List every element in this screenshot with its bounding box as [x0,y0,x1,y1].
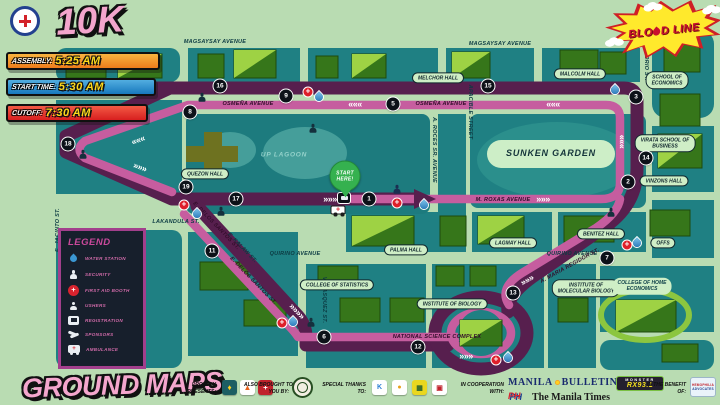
place-label: COLLEGE OF STATISTICS [300,279,374,290]
route-marker-18: 18 [62,138,75,151]
street-label: MAGSAYSAY AVENUE [469,41,531,47]
university-seal-logo [292,377,313,398]
place-label: PALMA HALL [384,244,428,255]
ambulance-icon [68,345,80,353]
route-marker-12: 12 [412,341,425,354]
firstaid-icon [622,240,633,251]
legend-item: REGISTRATION [68,316,136,325]
firstaid-icon [68,285,79,296]
schedule-label: ASSEMBLY: [12,58,53,65]
street-label: QUIRINO AVENUE [270,251,321,257]
water-icon [68,253,79,264]
route-marker-16: 16 [214,80,227,93]
place-label: UP LAGOON [261,152,307,159]
security-icon [310,124,317,133]
route-marker-11: 11 [206,245,219,258]
route-marker-13: 13 [507,287,520,300]
street-label: OSMEÑA AVENUE [222,101,273,107]
place-label: COLLEGE OF HOMEECONOMICS [613,278,672,295]
schedule-time: 5:25 AM [55,55,100,67]
footer-section-label: ALSO BROUGHT TOYOU BY: [244,382,289,395]
route-marker-19: 19 [180,181,193,194]
start-pin-label: HERE! [336,176,353,182]
direction-chevrons: ««« [546,99,560,109]
schedule-label: START TIME: [12,84,57,91]
ground-map-poster: MAGSAYSAY AVENUEMAGSAYSAY AVENUEOSMEÑA A… [0,0,720,405]
route-marker-17: 17 [230,193,243,206]
street-label: LAKANDULA ST. [152,219,199,225]
thanks-logo-icon: ▦ [412,380,427,395]
organizer-logo [10,6,40,36]
legend-label: WATER STATION [85,256,126,261]
thanks-logo-icon: K [372,380,387,395]
beneficiary-logo: HEMOPHILIAADVOCATES [690,377,716,397]
route-marker-1: 1 [363,193,376,206]
sun-icon [555,380,560,385]
street-label: APACIBLE STREET [467,85,473,140]
schedule-time: 5:30 AM [59,81,104,93]
legend-item: USHERS [68,300,136,311]
place-label: VINZONS HALL [640,175,689,186]
legend-title: LEGEND [68,237,136,248]
usher-icon [68,300,79,311]
manila-times-logo: The Manila Times [532,392,610,403]
security-icon [308,318,315,327]
direction-chevrons: ««« [348,99,362,109]
route-marker-9: 9 [280,90,293,103]
event-logo-text: BLO D LINE [609,0,718,63]
legend-label: USHERS [85,303,106,308]
route-marker-7: 7 [601,252,614,265]
footer-section-label: PROUDLYPRESENTS: [168,382,216,395]
legend-label: REGISTRATION [85,318,123,323]
security-icon [608,208,615,217]
security-icon [68,269,79,280]
legend-label: AMBULANCE [86,347,118,352]
schedule-bar-2: CUTOFF:7:30 AM [6,104,148,122]
place-label: VIRATA SCHOOL OFBUSINESS [635,134,696,152]
thanks-logo-icon: ● [392,380,407,395]
legend-items: WATER STATIONSECURITYFIRST AID BOOTHUSHE… [68,253,136,353]
legend-label: SECURITY [85,272,111,277]
event-logo-text-part: D LINE [660,21,700,37]
event-logo: BLO D LINE [609,0,718,63]
firstaid-icon [277,318,288,329]
registration-icon [68,316,79,325]
security-icon [80,150,87,159]
manila-bulletin-logo: MANILABULLETIN [508,377,617,388]
schedule-bar-1: START TIME:5:30 AM [6,78,156,96]
sponsors-icon [68,329,79,340]
direction-chevrons: »»» [323,194,337,204]
route-marker-3: 3 [630,91,643,104]
place-label: MALCOLM HALL [554,68,606,79]
place-label: INSTITUTE OFMOLECULAR BIOLOGY [552,279,620,297]
place-label: BENITEZ HALL [577,228,625,239]
event-logo-text-part: BLO [628,26,654,41]
legend-item: FIRST AID BOOTH [68,285,136,296]
place-label: LAGMAY HALL [489,237,537,248]
legend-panel: LEGEND WATER STATIONSECURITYFIRST AID BO… [58,228,146,369]
route-marker-15: 15 [482,80,495,93]
firstaid-icon [179,200,190,211]
route-marker-6: 6 [318,331,331,344]
security-icon [218,207,225,216]
ambulance-icon [331,206,346,215]
thanks-logo-icon: ▣ [432,380,447,395]
street-label: OSMEÑA AVENUE [415,101,466,107]
start-pin: START HERE! [330,161,361,192]
route-marker-14: 14 [640,152,653,165]
footer-section-label: IN THE BENEFITOF: [642,382,686,395]
ph-logo: PH [508,391,521,401]
route-marker-5: 5 [387,98,400,111]
schedule-bar-0: ASSEMBLY:5:25 AM [6,52,160,70]
footer-section-label: SPECIAL THANKSTO: [322,382,366,395]
presenter-logo-icon: ♦ [222,380,237,395]
distance-badge: 10K [41,0,139,44]
security-icon [199,93,206,102]
street-label: M. ROXAS AVENUE [476,197,531,203]
direction-chevrons: »»» [536,194,550,204]
street-label: A. ROCES SR. AVENUE [431,117,437,183]
legend-item: SECURITY [68,269,136,280]
place-label: SCHOOL OFECONOMICS [646,71,689,89]
route-marker-8: 8 [184,106,197,119]
place-label: QUEZON HALL [181,168,229,179]
legend-item: SPONSORS [68,329,136,340]
route-marker-2: 2 [622,176,635,189]
schedule-label: CUTOFF: [12,110,44,117]
firstaid-icon [303,87,314,98]
place-label: OFFS [650,237,675,248]
place-label: MELCHOR HALL [412,72,464,83]
legend-label: SPONSORS [85,332,113,337]
direction-chevrons: »»» [616,135,626,149]
statue-icon [394,185,401,194]
red-cross-icon [19,15,31,27]
firstaid-icon [392,198,403,209]
direction-chevrons: »»» [459,351,473,361]
firstaid-icon [491,355,502,366]
place-label: SUNKEN GARDEN [506,148,596,158]
legend-item: AMBULANCE [68,345,136,353]
legend-label: FIRST AID BOOTH [85,288,130,293]
footer-section-label: IN COOPERATIONWITH: [456,382,504,395]
street-label: MAGSAYSAY AVENUE [184,39,246,45]
street-label: NATIONAL SCIENCE COMPLEX [393,334,482,340]
place-label: INSTITUTE OF BIOLOGY [417,298,488,309]
schedule-time: 7:30 AM [46,107,91,119]
legend-item: WATER STATION [68,253,136,264]
